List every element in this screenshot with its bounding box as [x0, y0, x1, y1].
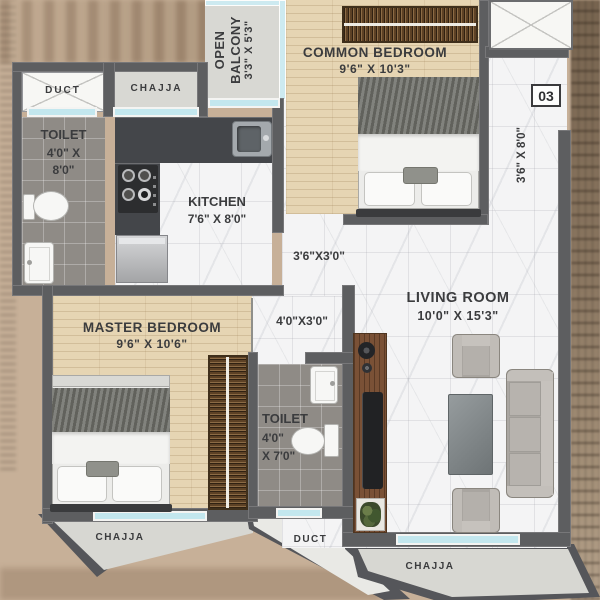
bed-headboard	[50, 504, 172, 512]
armchair-arm	[453, 489, 462, 532]
wardrobe	[342, 6, 478, 43]
burner	[138, 188, 151, 201]
unit-number: 03	[538, 88, 554, 104]
room-dims: 8'0"	[22, 162, 105, 179]
armchair	[452, 488, 500, 533]
tv-unit	[353, 333, 387, 533]
dimension-text: 3'6"X3'0"	[268, 249, 370, 263]
background-building-top	[0, 0, 208, 63]
sofa-cushion	[509, 453, 541, 486]
kitchen-sink	[232, 121, 272, 157]
background-shelf-right	[571, 0, 600, 600]
chajja-top-label: CHAJJA	[115, 83, 198, 95]
living-room-window	[396, 534, 520, 545]
sofa-cushion	[509, 382, 541, 416]
armchair-arm	[490, 335, 499, 377]
lift-shaft-box	[489, 0, 573, 50]
room-dims: X 7'0"	[262, 447, 322, 465]
sofa-cushion	[509, 417, 541, 452]
room-dims: 9'6" X 10'3"	[275, 62, 475, 77]
living-room-label: LIVING ROOM 10'0" X 15'3"	[358, 289, 558, 324]
wall	[248, 352, 258, 520]
room-dims: 4'0" X	[22, 145, 105, 162]
label-text: DUCT	[22, 85, 104, 97]
gas-stove	[118, 165, 158, 213]
room-name: COMMON BEDROOM	[275, 45, 475, 62]
armchair-seat	[463, 346, 489, 375]
entry-passage-dimension: 3'6" X 8'0"	[516, 105, 530, 205]
toilet-2-window	[276, 508, 322, 518]
room-dims: 3'3" X 5'3"	[243, 0, 256, 100]
blanket	[52, 388, 170, 432]
open-balcony-label: OPEN BALCONY 3'3" X 5'3"	[212, 0, 264, 100]
passage-2-dimension: 4'0"X3'0"	[252, 314, 352, 328]
room-dims: 4'0"	[262, 429, 322, 447]
tray-inner	[29, 247, 50, 281]
pillow	[112, 466, 162, 502]
dimension-text: 4'0"X3'0"	[252, 314, 352, 328]
duct-top-label: DUCT	[22, 85, 104, 97]
chajja-bottom-left-label: CHAJJA	[75, 532, 165, 544]
kitchen-window	[113, 107, 199, 117]
armchair	[452, 334, 500, 378]
sofa-arm	[507, 486, 553, 497]
wall	[558, 130, 571, 547]
unit-number-badge: 03	[531, 84, 561, 107]
room-name: TOILET	[22, 126, 105, 145]
burner	[122, 188, 135, 201]
wardrobe	[208, 355, 248, 510]
duvet	[52, 432, 170, 464]
cushion	[86, 461, 119, 477]
double-bed	[52, 375, 170, 513]
room-name: MASTER BEDROOM	[62, 320, 242, 337]
faucet	[330, 381, 335, 386]
shower-tray	[24, 242, 54, 284]
stove-knobs	[153, 170, 156, 206]
room-name: OPEN	[212, 0, 228, 100]
floor-plan: 03 OPEN BALCONY 3'3" X 5'3" CHAJJA DUCT …	[0, 0, 600, 600]
room-name: TOILET	[262, 409, 322, 429]
duvet	[358, 134, 479, 171]
common-bedroom-label: COMMON BEDROOM 9'6" X 10'3"	[275, 45, 475, 77]
plant	[356, 498, 385, 531]
label-text: DUCT	[283, 534, 338, 546]
sink-bowl	[237, 126, 261, 152]
drain	[27, 260, 32, 265]
refrigerator	[116, 235, 168, 283]
passage-1-dimension: 3'6"X3'0"	[268, 249, 370, 263]
sink-faucet	[263, 135, 269, 141]
basin-inner	[315, 371, 335, 401]
master-bedroom-label: MASTER BEDROOM 9'6" X 10'6"	[62, 320, 242, 352]
chajja-bottom-right-label: CHAJJA	[385, 561, 475, 573]
cushion	[403, 167, 438, 184]
room-name: LIVING ROOM	[358, 289, 558, 308]
wall	[479, 0, 489, 225]
room-dims: 10'0" X 15'3"	[358, 308, 558, 324]
washbasin	[310, 366, 338, 404]
duct-bottom-label: DUCT	[283, 534, 338, 546]
background-bottom-band	[0, 568, 380, 600]
wardrobe-rail	[344, 23, 476, 26]
burner	[138, 169, 151, 182]
label-text: CHAJJA	[115, 83, 198, 95]
dimension-text: 3'6" X 8'0"	[516, 105, 530, 205]
label-text: CHAJJA	[75, 532, 165, 544]
refrigerator-top	[119, 238, 165, 244]
blanket	[358, 77, 479, 134]
sofa-back	[541, 372, 553, 495]
wc-toilet-tank	[324, 424, 339, 457]
wardrobe-rail	[226, 357, 229, 508]
room-dims: 7'6" X 8'0"	[157, 211, 277, 227]
double-bed	[358, 77, 479, 217]
toilet-1-window	[27, 107, 97, 117]
armchair-arm	[490, 489, 499, 532]
wc-toilet-bowl	[33, 191, 69, 221]
room-name: BALCONY	[228, 0, 244, 100]
toilet-2-label: TOILET 4'0" X 7'0"	[262, 409, 322, 465]
room-dims: 9'6" X 10'6"	[62, 337, 242, 352]
television	[362, 392, 383, 489]
plant-leaves	[360, 502, 381, 527]
wall	[12, 62, 22, 296]
room-name: KITCHEN	[157, 193, 277, 211]
sofa	[506, 369, 554, 498]
label-text: CHAJJA	[385, 561, 475, 573]
bed-headboard	[356, 209, 481, 217]
speaker-icon	[358, 342, 375, 359]
sofa-arm	[507, 370, 553, 381]
burner	[122, 169, 135, 182]
toilet-1-label: TOILET 4'0" X 8'0"	[22, 126, 105, 180]
coffee-table	[448, 394, 493, 475]
kitchen-label: KITCHEN 7'6" X 8'0"	[157, 193, 277, 227]
armchair-seat	[463, 492, 489, 521]
wall	[305, 352, 355, 364]
armchair-arm	[453, 335, 462, 377]
speaker-icon	[362, 363, 372, 373]
